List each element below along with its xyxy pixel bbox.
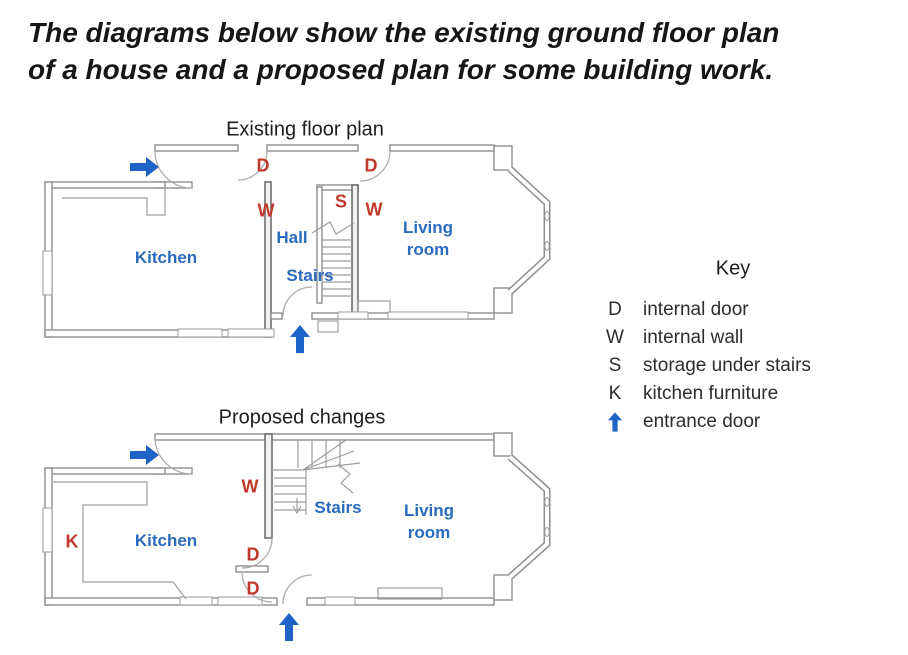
entrance-arrow-icon — [130, 157, 159, 177]
arrow-up-icon — [598, 412, 632, 432]
entrance-arrow-icon — [290, 325, 310, 353]
entrance-arrow-icon — [279, 613, 299, 641]
window — [388, 312, 468, 319]
key-label: kitchen furniture — [632, 383, 778, 405]
floorplan-drawing — [0, 0, 908, 655]
window — [325, 597, 355, 605]
hall-label: Hall — [276, 227, 307, 249]
kitchen-label: Kitchen — [135, 530, 197, 552]
door-marker: D — [365, 156, 378, 177]
window — [43, 251, 52, 295]
stairs-label: Stairs — [286, 265, 333, 287]
entrance-arrow-icon — [130, 445, 159, 465]
wall-marker: W — [366, 200, 383, 221]
key-row: W internal wall — [598, 325, 743, 351]
window — [338, 312, 368, 319]
key-title: Key — [716, 258, 750, 281]
kitchen-furniture-marker: K — [66, 532, 79, 553]
existing-plan-title: Existing floor plan — [226, 119, 384, 142]
proposed-plan-title: Proposed changes — [219, 407, 386, 430]
internal-wall-living — [352, 185, 358, 313]
key-label: storage under stairs — [632, 355, 811, 377]
key-symbol-storage: S — [598, 355, 632, 377]
key-label: internal wall — [632, 327, 743, 349]
kitchen-counter — [62, 188, 165, 215]
storage-marker: S — [335, 192, 347, 213]
bay-window — [494, 146, 549, 313]
window — [228, 329, 274, 337]
wall-marker: W — [258, 201, 275, 222]
page: The diagrams below show the existing gro… — [0, 0, 908, 655]
key-label: internal door — [632, 299, 749, 321]
door-arc-front — [283, 287, 312, 316]
key-symbol-door: D — [598, 299, 632, 321]
wall-marker: W — [242, 477, 259, 498]
existing-plan-drawing — [43, 145, 549, 353]
key-row: D internal door — [598, 297, 749, 323]
door-marker: D — [247, 579, 260, 600]
key-label: entrance door — [632, 411, 760, 433]
living-room-label: Living room — [393, 500, 465, 544]
bay-window — [494, 433, 549, 600]
door-marker: D — [247, 545, 260, 566]
internal-wall-stairs — [265, 434, 272, 538]
kitchen-label: Kitchen — [135, 247, 197, 269]
living-room-label: Living room — [392, 217, 464, 261]
key-symbol-wall: W — [598, 327, 632, 349]
stairs-label: Stairs — [314, 497, 361, 519]
window — [43, 508, 52, 552]
key-row: K kitchen furniture — [598, 381, 778, 407]
key-symbol-kitchen-furniture: K — [598, 383, 632, 405]
proposed-plan-drawing — [43, 433, 549, 641]
door-marker: D — [257, 156, 270, 177]
window — [178, 329, 222, 337]
key-row: S storage under stairs — [598, 353, 811, 379]
key-row: entrance door — [598, 409, 760, 435]
